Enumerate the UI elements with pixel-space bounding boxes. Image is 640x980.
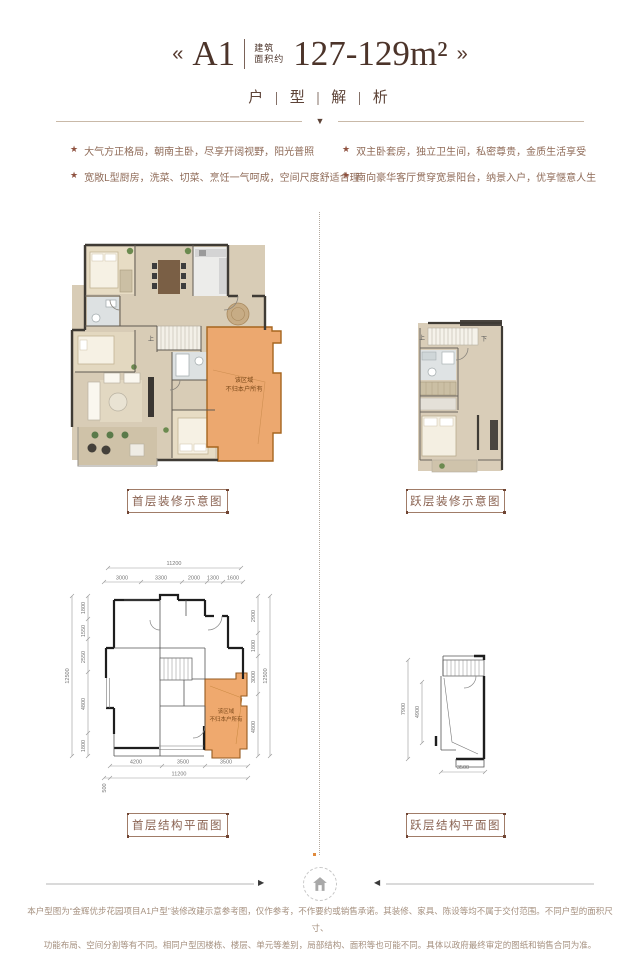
plant-icon [127,248,133,254]
bedroom-top-left [87,247,134,294]
first-floor-decorated-plan: 上 [60,230,312,482]
plant-icon [185,248,191,254]
svg-text:2550: 2550 [81,651,87,663]
entry-rug [227,303,249,325]
feature-text: 大气方正格局，朝南主卧，尽享开阔视野，阳光普照 [84,143,314,158]
plan-code: A1 [192,36,235,71]
bathroom-left [87,297,119,326]
disclaimer-line2: 功能布局、空间分割等有不同。相同户型因楼栋、楼层、单元等差别，局部结构、面积等也… [20,937,620,954]
left-triangle-icon: ◀ [374,879,380,887]
svg-text:2000: 2000 [188,576,200,582]
svg-text:12500: 12500 [263,668,269,683]
door-arc [464,676,476,688]
bathroom [420,350,456,380]
svg-text:11200: 11200 [172,772,187,778]
svg-text:1800: 1800 [81,602,87,614]
divider-line-left [56,121,302,122]
zone-label-line2: 不归本户所有 [225,385,262,393]
feature-item: ★ 南向豪华客厅贯穿宽景阳台，纳景入户，优享惬意人生 [342,169,596,184]
balcony [432,460,477,472]
caption-loft-deco: 跃层装修示意图 [406,489,505,513]
star-icon: ★ [70,144,78,155]
stairs [160,658,192,680]
caption-loft-structure: 跃层结构平面图 [406,813,505,837]
plant-icon [163,427,169,433]
loft-structural-plan: 7900 4900 3500 [398,642,520,810]
footer-divider-left [46,883,254,885]
svg-text:4200: 4200 [130,760,142,766]
caption-text: 跃层装修示意图 [410,493,501,509]
star-icon: ★ [342,144,350,155]
svg-text:3000: 3000 [251,671,257,683]
svg-text:3500: 3500 [220,760,232,766]
down-triangle-icon: ▼ [316,117,325,126]
zone-label-line2: 不归本户所有 [209,715,243,723]
right-triangle-icon: ▶ [258,879,264,887]
disclaimer: 本户型图为“金辉优步花园项目A1户型”装修改建示意参考图，仅作参考，不作要约或销… [20,903,620,954]
svg-text:4800: 4800 [81,698,87,710]
void-lines [444,678,478,754]
feature-list: ★ 大气方正格局，朝南主卧，尽享开阔视野，阳光普照 ★ 双主卧套房，独立卫生间，… [70,143,575,184]
subtitle: 户 | 型 | 解 | 析 [0,86,640,107]
area-label-line2: 面积约 [254,54,284,64]
not-owned-zone: 该区域 不归本户所有 [207,327,281,461]
feature-item: ★ 大气方正格局，朝南主卧，尽享开阔视野，阳光普照 [70,143,342,158]
floorplan-poster: « A1 建筑 面积约 127-129m² » 户 | 型 | 解 | 析 ▼ … [0,0,640,980]
bathroom-center [172,352,207,380]
feature-item: ★ 双主卧套房，独立卫生间，私密尊贵，金质生活享受 [342,143,596,158]
zone-label-line1: 该区域 [235,376,254,384]
feature-text: 双主卧套房，独立卫生间，私密尊贵，金质生活享受 [356,143,586,158]
feature-text: 南向豪华客厅贯穿宽景阳台，纳景入户，优享惬意人生 [356,169,596,184]
page-title: « A1 建筑 面积约 127-129m² » [0,36,640,71]
caption-text: 跃层结构平面图 [410,817,501,833]
divider-end-dot [313,853,316,856]
svg-text:1300: 1300 [207,576,219,582]
stairs [443,660,484,676]
svg-text:12500: 12500 [65,668,71,683]
svg-text:7900: 7900 [401,703,407,715]
vertical-dotted-divider [319,212,320,855]
study-bedroom [74,332,135,372]
header-divider: ▼ [0,117,640,126]
svg-text:500: 500 [102,783,108,792]
caption-first-floor-structure: 首层结构平面图 [127,813,228,837]
first-floor-structural-plan: 11200 3000 3300 2000 1300 1600 12500 180… [64,556,304,826]
svg-text:4800: 4800 [251,721,257,733]
area-label: 建筑 面积约 [254,43,284,64]
not-owned-zone: 该区域 不归本户所有 [205,673,247,758]
counter [420,398,456,410]
svg-text:3300: 3300 [155,576,167,582]
svg-text:2900: 2900 [251,610,257,622]
plant-icon [131,364,137,370]
svg-text:3000: 3000 [116,576,128,582]
plant-icon [439,463,445,469]
caption-text: 首层结构平面图 [132,817,223,833]
disclaimer-line1: 本户型图为“金辉优步花园项目A1户型”装修改建示意参考图，仅作参考，不作要约或销… [20,903,620,937]
svg-text:3500: 3500 [177,760,189,766]
stair-down-label: 下 [481,336,487,343]
svg-text:1800: 1800 [251,640,257,652]
house-seal-icon [303,867,337,901]
svg-text:1550: 1550 [81,625,87,637]
stair-up-label: 上 [148,335,154,343]
balcony [78,427,157,465]
feature-item: ★ 宽敞L型厨房，洗菜、切菜、烹饪一气呵成，空间尺度舒适合理 [70,169,342,184]
area-label-line1: 建筑 [254,43,274,53]
svg-text:4900: 4900 [415,706,421,718]
kitchen [193,247,228,296]
feature-text: 宽敞L型厨房，洗菜、切菜、烹饪一气呵成，空间尺度舒适合理 [84,169,360,184]
caption-text: 首层装修示意图 [132,493,223,509]
title-separator [244,39,245,69]
area-value: 127-129m² [293,36,447,71]
divider-line-right [338,121,584,122]
loft-decorated-plan: 上 下 [402,300,507,480]
caption-first-floor-deco: 首层装修示意图 [127,489,228,513]
svg-text:11200: 11200 [167,561,182,567]
wardrobe [420,382,456,395]
star-icon: ★ [342,170,350,181]
right-double-chevron-icon: » [457,44,468,64]
stairs: 上 下 [419,328,487,345]
zone-label-line1: 该区域 [218,707,235,715]
footer-divider-right [386,883,594,885]
left-double-chevron-icon: « [172,44,183,64]
svg-text:1800: 1800 [81,740,87,752]
svg-text:1600: 1600 [227,576,239,582]
star-icon: ★ [70,170,78,181]
svg-text:3500: 3500 [457,765,469,771]
